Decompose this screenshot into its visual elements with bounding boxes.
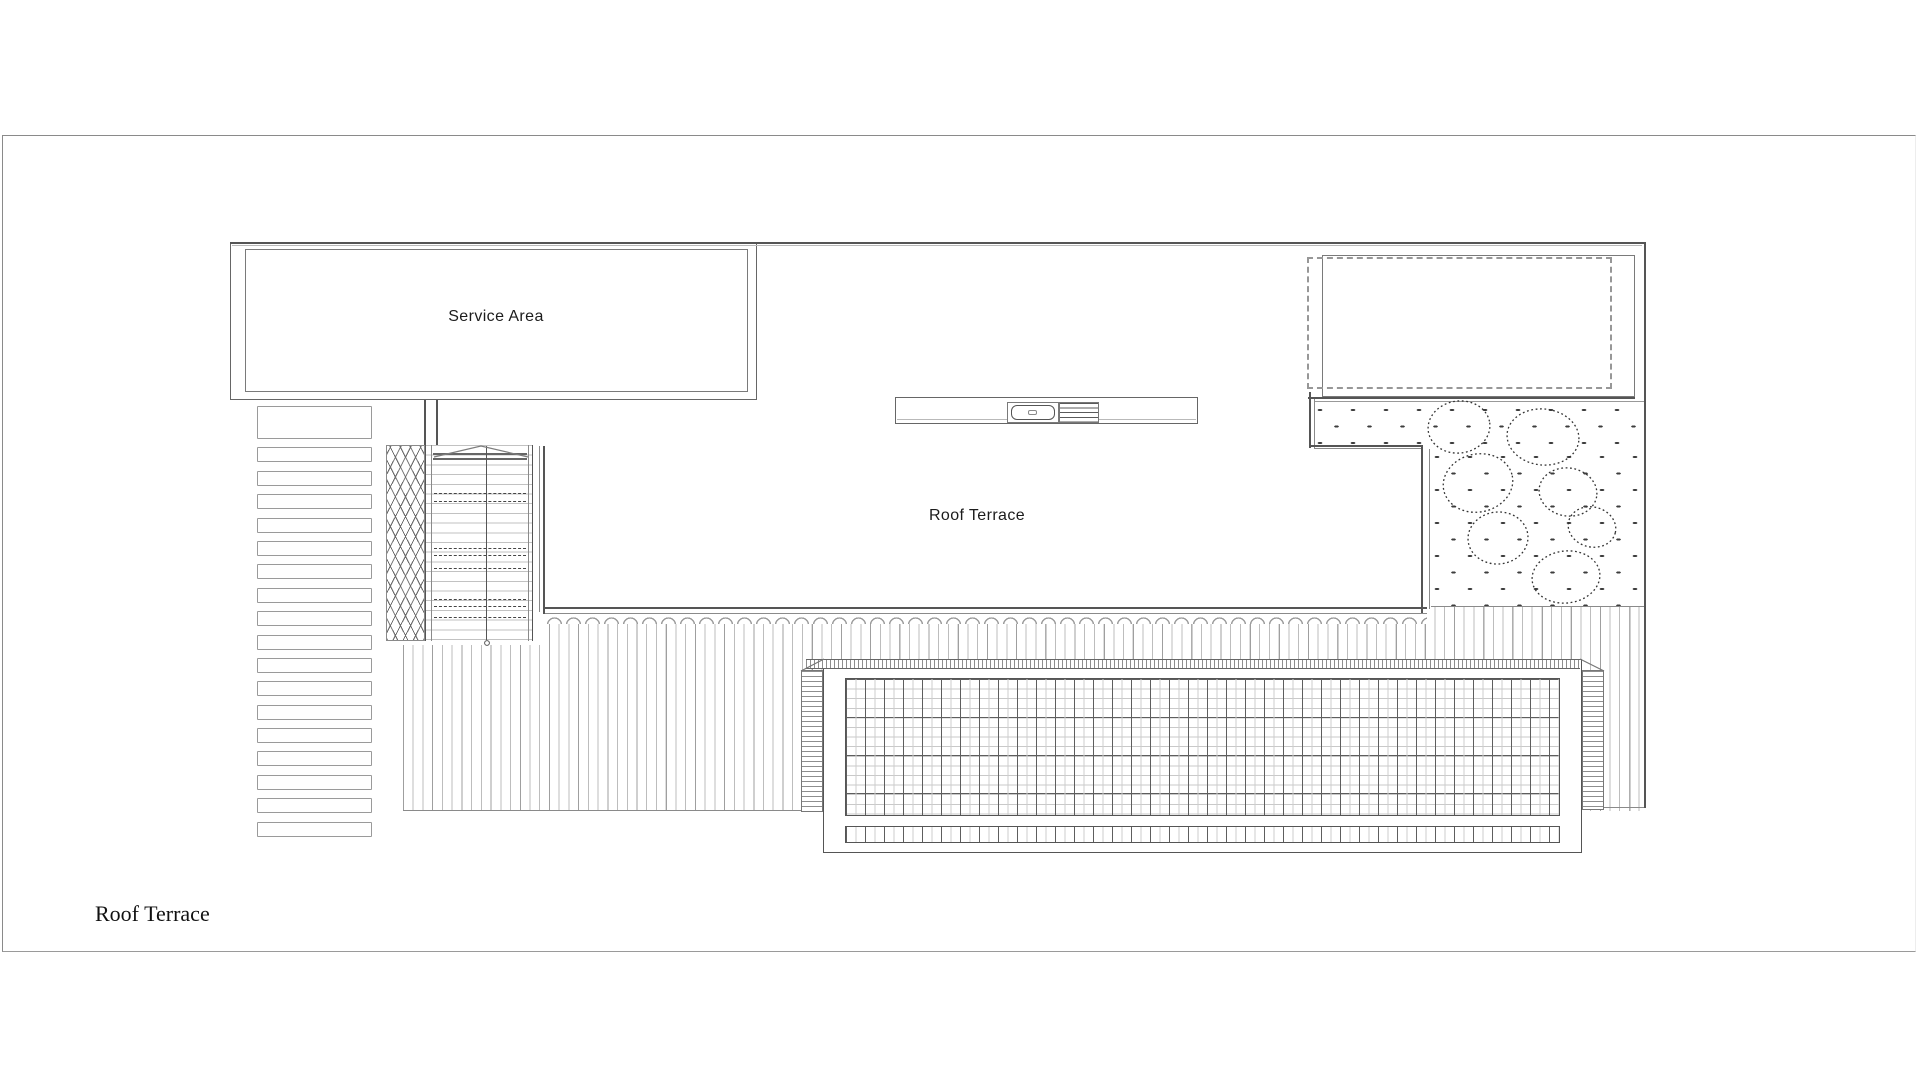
pergola-left-chamfer — [801, 659, 824, 671]
plan-annotations — [0, 0, 1920, 1080]
shrub-cluster — [1425, 397, 1620, 607]
roof-terrace-label: Roof Terrace — [877, 507, 1077, 525]
page-title: Roof Terrace — [95, 901, 210, 927]
stair-chevron-icon — [434, 446, 528, 457]
pergola-right-chamfer — [1580, 659, 1604, 671]
stair-arrow-tail-icon — [485, 641, 490, 646]
drawing-canvas: Service Area — [0, 0, 1920, 1080]
